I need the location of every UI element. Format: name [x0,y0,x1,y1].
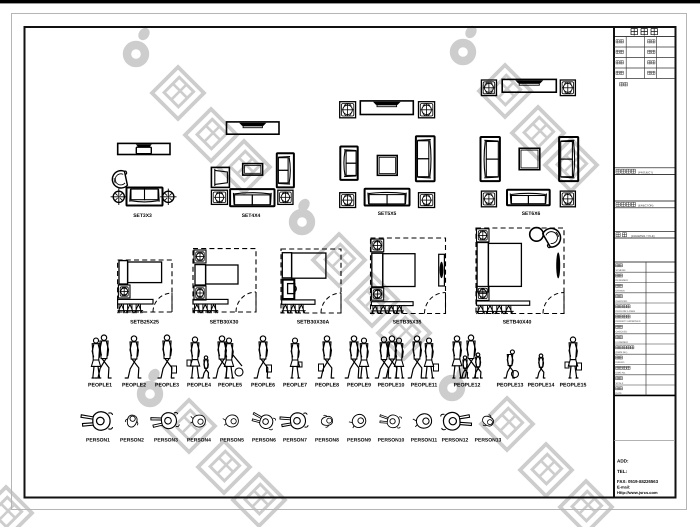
svg-text:PERSON11: PERSON11 [411,438,438,444]
svg-text:Http://www.jsrcs.com: Http://www.jsrcs.com [617,490,658,495]
svg-text:SETB40X40: SETB40X40 [503,320,532,326]
svg-text:PEOPLE11: PEOPLE11 [411,383,438,389]
svg-text:SET3X3: SET3X3 [133,213,152,219]
svg-text:PEOPLE4: PEOPLE4 [187,383,211,389]
svg-text:PEOPLE14: PEOPLE14 [528,383,555,389]
svg-text:PEOPLE6: PEOPLE6 [251,383,275,389]
svg-text:PEOPLE2: PEOPLE2 [122,383,146,389]
svg-text:PERSON5: PERSON5 [220,438,244,444]
svg-text:PERSON1: PERSON1 [86,438,110,444]
svg-text:PERSON3: PERSON3 [154,438,178,444]
svg-text:(PROJECT): (PROJECT) [638,171,653,175]
svg-text:PERSON12: PERSON12 [442,438,469,444]
svg-text:PERSON8: PERSON8 [315,438,339,444]
svg-text:PERSON6: PERSON6 [252,438,276,444]
svg-text:(ERECTOR): (ERECTOR) [638,204,654,208]
svg-text:CHECKED: CHECKED [616,300,628,303]
svg-text:PRO.FOR A DWG: PRO.FOR A DWG [616,310,636,313]
svg-text:PERSON13: PERSON13 [475,438,502,444]
svg-text:PEOPLE15: PEOPLE15 [560,383,587,389]
svg-text:EXAMINED: EXAMINED [616,341,629,344]
svg-text:PERSON9: PERSON9 [347,438,371,444]
svg-text:PERSON10: PERSON10 [378,438,405,444]
svg-text:PEOPLE7: PEOPLE7 [283,383,307,389]
svg-text:(DWG No.): (DWG No.) [616,351,628,354]
svg-text:PEOPLE8: PEOPLE8 [315,383,339,389]
svg-text:SETB35X35: SETB35X35 [393,320,422,326]
svg-text:TEL:: TEL: [617,469,628,474]
svg-text:SETB30X30: SETB30X30 [210,320,239,326]
svg-text:SCALE: SCALE [616,382,624,385]
svg-text:DWG No.: DWG No. [616,372,627,375]
svg-text:ADD:: ADD: [617,459,629,464]
svg-text:PERSON2: PERSON2 [120,438,144,444]
svg-text:PROJECT APPROVED: PROJECT APPROVED [616,320,641,323]
svg-text:SET5X5: SET5X5 [378,211,397,217]
svg-text:(DRAWING TITLE): (DRAWING TITLE) [631,234,655,238]
svg-text:SET6X6: SET6X6 [522,211,541,217]
svg-text:PEOPLE1: PEOPLE1 [88,383,112,389]
svg-text:E-mail:: E-mail: [617,484,630,489]
svg-text:SETB30X30A: SETB30X30A [297,320,330,326]
svg-text:ISSUED: ISSUED [616,361,625,364]
svg-text:SET4X4: SET4X4 [242,213,261,219]
svg-text:PERSON4: PERSON4 [187,438,211,444]
svg-text:CHECKED: CHECKED [616,331,628,334]
svg-text:SETB25X25: SETB25X25 [130,320,159,326]
svg-text:PEOPLE3: PEOPLE3 [155,383,179,389]
svg-text:FAX: 0519-88226563: FAX: 0519-88226563 [617,479,659,484]
svg-text:DATE: DATE [616,392,623,395]
svg-text:PEOPLE10: PEOPLE10 [378,383,405,389]
svg-text:PEOPLE5: PEOPLE5 [218,383,242,389]
svg-text:PEOPLE9: PEOPLE9 [347,383,371,389]
svg-text:SCHEME: SCHEME [616,269,627,272]
svg-text:DESIGNED: DESIGNED [616,279,629,282]
svg-text:PERSON7: PERSON7 [283,438,307,444]
svg-text:PEOPLE13: PEOPLE13 [497,383,524,389]
svg-text:DRAWN: DRAWN [616,290,625,293]
svg-text:PEOPLE12: PEOPLE12 [454,383,481,389]
